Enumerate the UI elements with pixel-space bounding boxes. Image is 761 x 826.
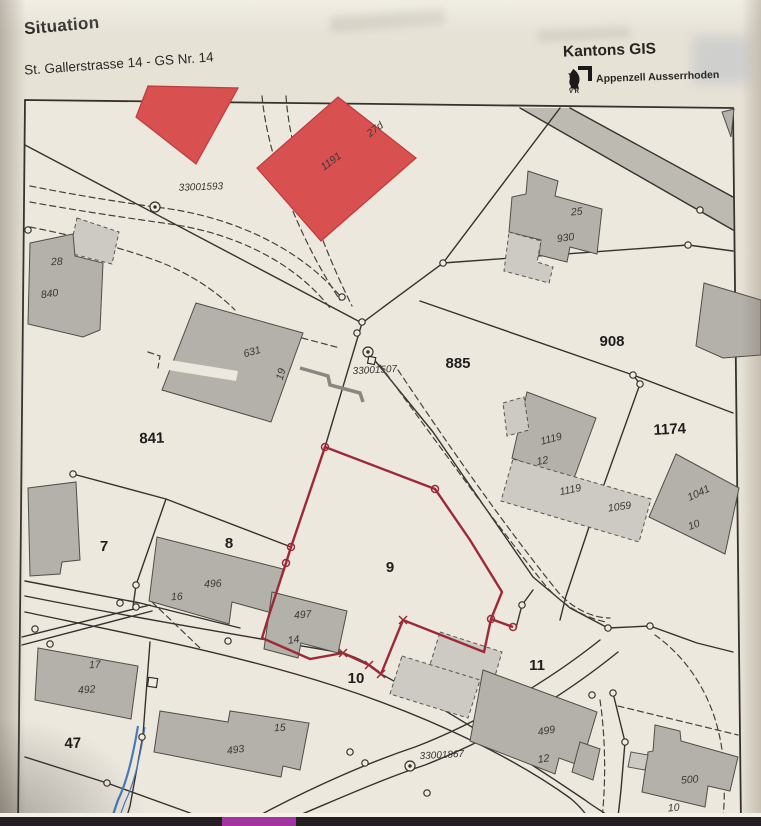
boundary-node: [139, 734, 145, 740]
building-label-500: 500: [680, 773, 699, 786]
building-label-15: 15: [274, 722, 286, 735]
survey-marker-square: [147, 677, 157, 687]
parcel-label-841: 841: [139, 430, 165, 448]
boundary-node: [133, 582, 139, 588]
boundary-node: [25, 227, 31, 233]
survey-point-dot: [366, 350, 369, 353]
boundary-node: [47, 641, 53, 647]
parcel-label-1174: 1174: [653, 420, 687, 439]
boundary-node: [622, 739, 628, 745]
parcel-label-885: 885: [445, 355, 470, 372]
boundary-node: [104, 780, 110, 786]
boundary-node: [362, 760, 368, 766]
boundary-node: [117, 600, 123, 606]
boundary-node: [685, 242, 691, 248]
boundary-node: [519, 602, 525, 608]
survey-point-dot: [153, 205, 156, 208]
building-label-492: 492: [77, 683, 96, 696]
building-label-496: 496: [204, 578, 222, 591]
boundary-node: [637, 381, 643, 387]
building-label-930: 930: [556, 231, 575, 245]
building-label-14: 14: [287, 633, 300, 647]
survey-point-33001867: [405, 761, 415, 771]
parcel-label-47: 47: [64, 735, 81, 753]
boundary-node: [630, 372, 636, 378]
survey-label-33001507: 33001507: [352, 364, 397, 377]
parcel-label-9: 9: [386, 559, 394, 576]
boundary-node: [359, 319, 365, 325]
building-label-12b: 12: [537, 752, 550, 766]
survey-marker-square: [367, 356, 375, 364]
building-label-28: 28: [50, 256, 63, 269]
boundary-node: [424, 790, 430, 796]
boundary-node: [440, 260, 446, 266]
boundary-node: [70, 471, 76, 477]
survey-label-33001593: 33001593: [178, 181, 223, 194]
building-908-east: [696, 283, 761, 358]
building-label-12: 12: [536, 454, 550, 468]
photo-edge-dark: [0, 817, 761, 826]
boundary-node: [610, 690, 616, 696]
boundary-node: [339, 294, 345, 300]
boundary-node: [347, 749, 353, 755]
parcel-label-908: 908: [599, 333, 624, 350]
boundary-node: [647, 623, 653, 629]
parcel-label-10: 10: [348, 670, 365, 687]
building-label-25: 25: [569, 206, 583, 219]
boundary-node: [589, 692, 595, 698]
survey-point-dot: [408, 764, 411, 767]
photo-edge-magenta: [222, 817, 296, 826]
boundary-node: [32, 626, 38, 632]
boundary-node: [605, 625, 611, 631]
survey-label-33001867: 33001867: [419, 749, 464, 762]
parcel-label-7: 7: [100, 538, 108, 555]
boundary-node: [225, 638, 231, 644]
building-label-17: 17: [89, 659, 102, 672]
situation-map: 841 885 908 1174 7 8 9 10 11 47 28 840 6…: [0, 0, 761, 826]
building-label-497: 497: [293, 608, 313, 622]
survey-point-33001507: [363, 347, 373, 357]
boundary-node: [697, 207, 703, 213]
building-label-493: 493: [226, 743, 245, 757]
building-500-annex: [628, 752, 648, 770]
building-label-840: 840: [40, 287, 59, 301]
boundary-node: [133, 604, 139, 610]
boundary-node: [354, 330, 360, 336]
building-label-16: 16: [171, 591, 183, 604]
parcel-label-11: 11: [529, 657, 545, 674]
survey-point-33001593: [150, 202, 160, 212]
parcel-label-8: 8: [225, 535, 233, 552]
